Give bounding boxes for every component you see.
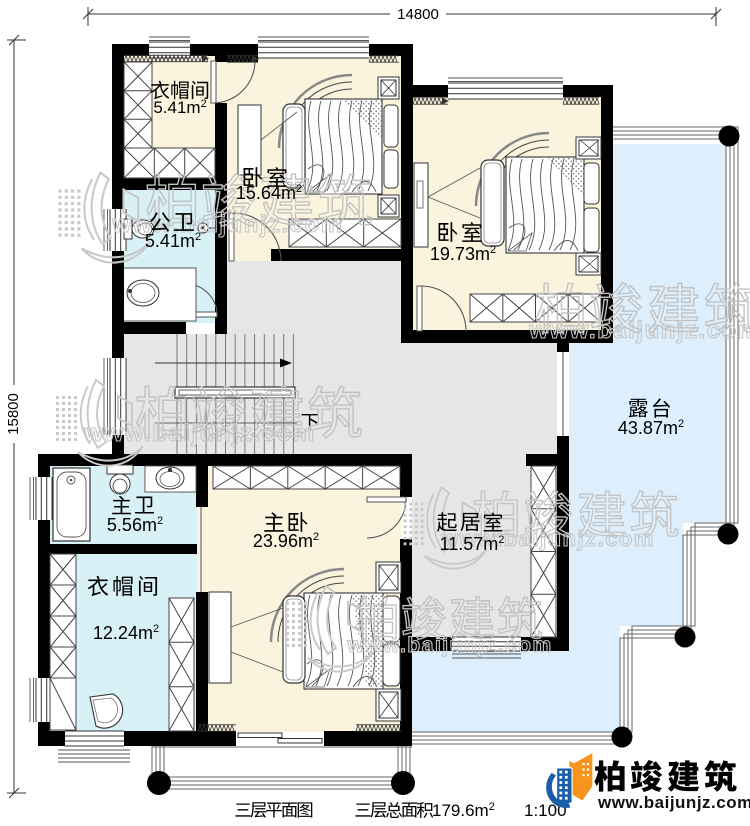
svg-text:www.baijunjz.com: www.baijunjz.com [528, 317, 750, 344]
svg-text:179.6m2: 179.6m2 [432, 801, 495, 820]
svg-text:5.41m2: 5.41m2 [145, 231, 201, 251]
svg-text:12.24m2: 12.24m2 [93, 623, 159, 643]
svg-text:5.56m2: 5.56m2 [107, 515, 163, 535]
svg-text:www.baijunjz.com: www.baijunjz.com [346, 634, 552, 657]
svg-text:23.96m2: 23.96m2 [253, 531, 319, 551]
svg-text:11.57m2: 11.57m2 [440, 534, 505, 554]
svg-text:5.41m2: 5.41m2 [153, 98, 206, 117]
svg-text:15.64m2: 15.64m2 [236, 183, 302, 203]
svg-text:www.baijunjz.com: www.baijunjz.com [83, 420, 315, 447]
svg-text:www.baijunjz.com: www.baijunjz.com [597, 793, 750, 812]
svg-text:14800: 14800 [397, 6, 439, 23]
svg-text:19.73m2: 19.73m2 [430, 244, 496, 264]
svg-text:15800: 15800 [5, 393, 22, 435]
svg-text:43.87m2: 43.87m2 [618, 418, 684, 438]
